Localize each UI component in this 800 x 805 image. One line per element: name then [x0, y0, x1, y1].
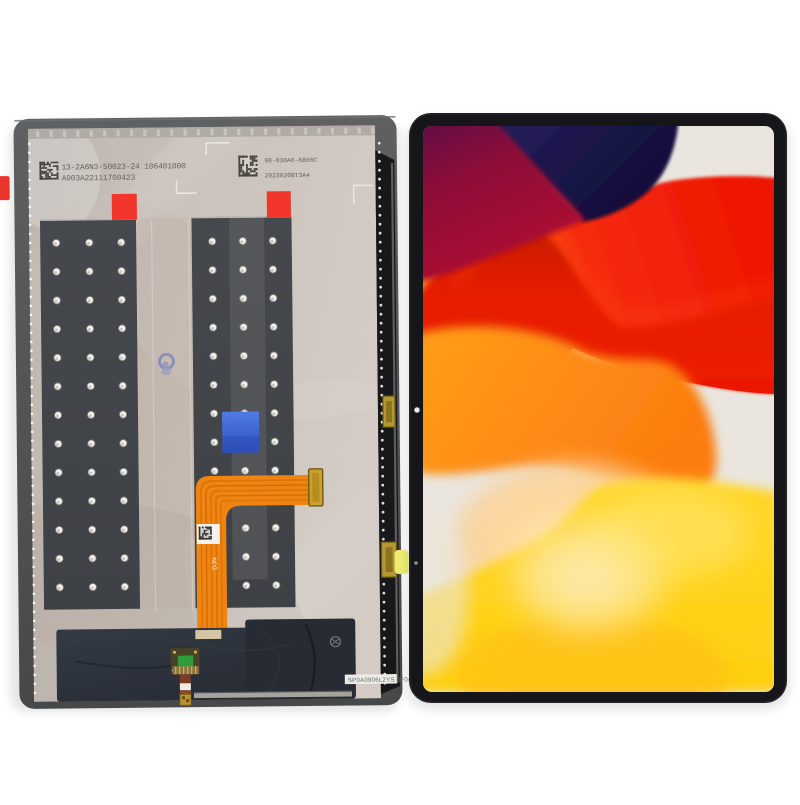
svg-text:98-030A6-6866C: 98-030A6-6866C: [264, 157, 317, 165]
svg-text:DJN: DJN: [212, 557, 219, 570]
svg-text:A903A22111700423: A903A22111700423: [62, 174, 136, 184]
svg-text:20230208T3A4: 20230208T3A4: [264, 172, 310, 179]
svg-text:13-2A6N3-50023-24 106401000: 13-2A6N3-50023-24 106401000: [61, 162, 186, 172]
